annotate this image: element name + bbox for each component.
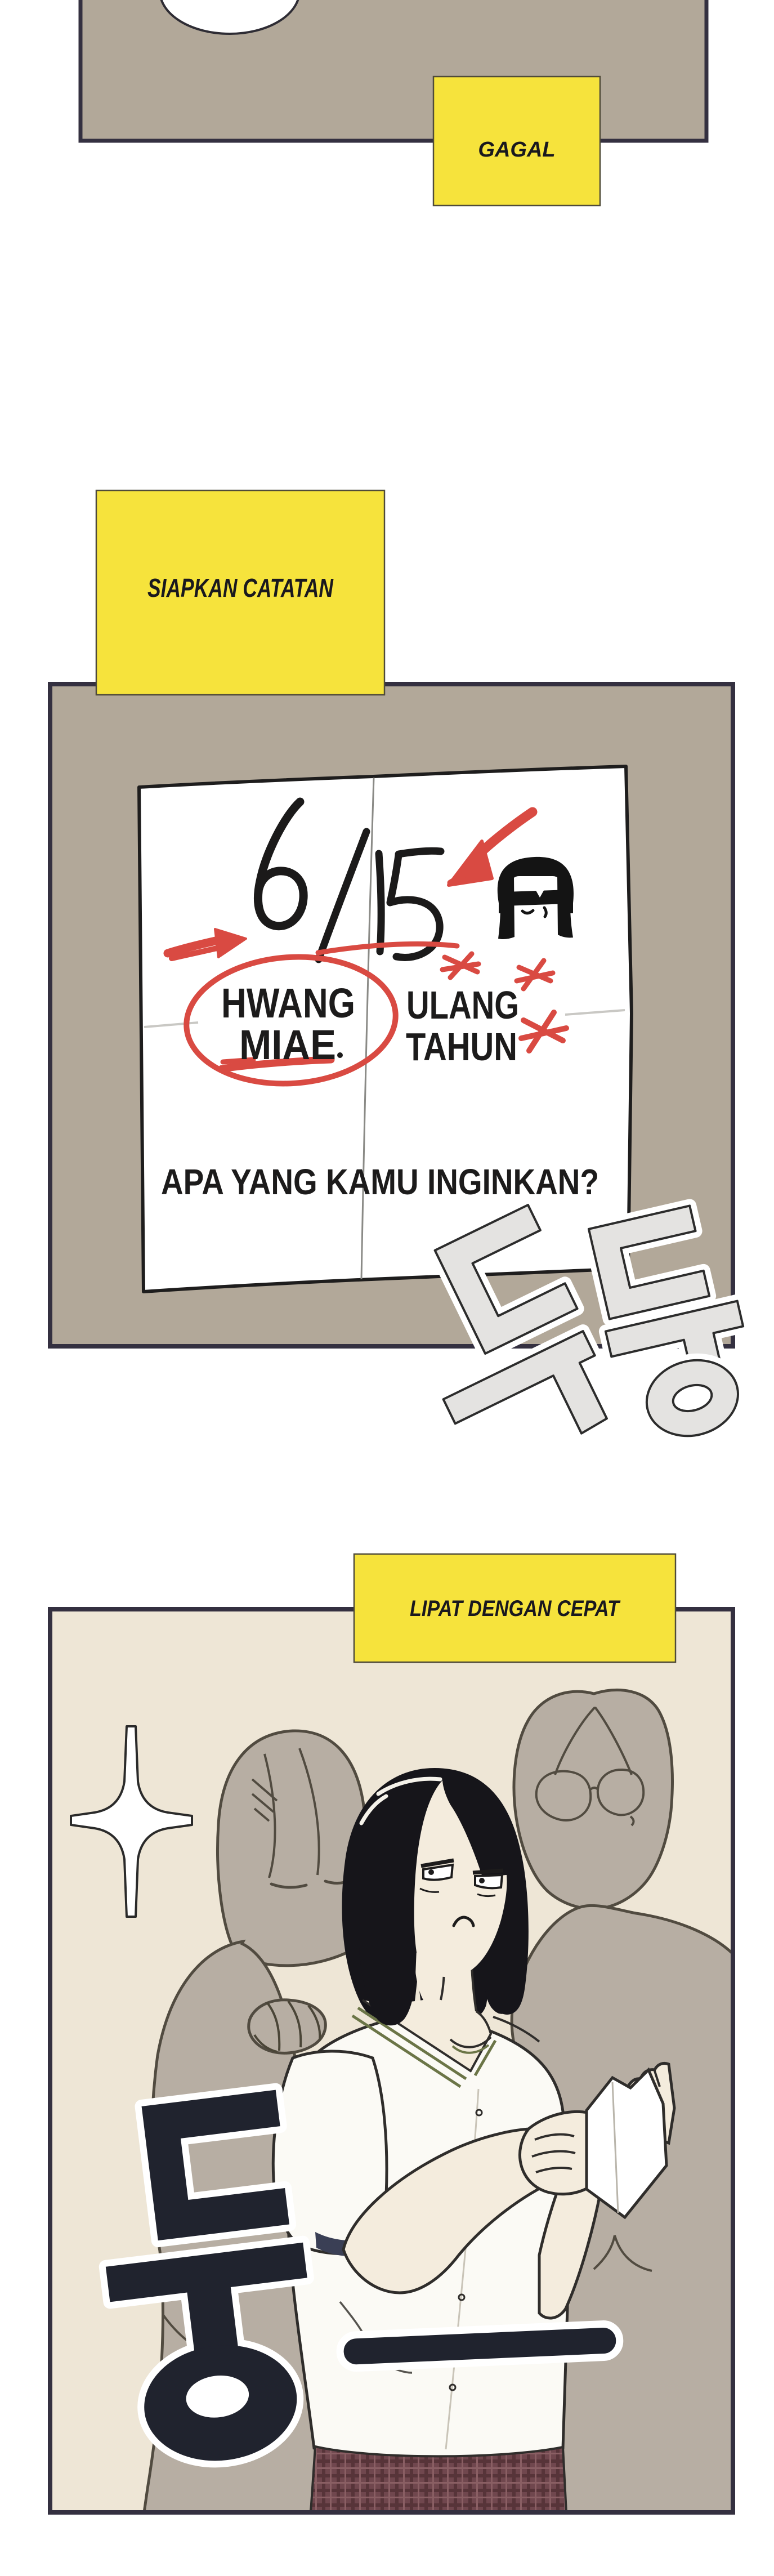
svg-text:ULANG: ULANG <box>406 983 519 1027</box>
svg-text:GAGAL: GAGAL <box>478 138 555 162</box>
svg-text:TAHUN: TAHUN <box>406 1025 517 1069</box>
svg-text:LIPAT DENGAN CEPAT: LIPAT DENGAN CEPAT <box>410 1596 621 1621</box>
svg-text:MIAE: MIAE <box>239 1021 336 1068</box>
svg-text:SIAPKAN CATATAN: SIAPKAN CATATAN <box>147 573 334 602</box>
svg-text:APA YANG KAMU INGINKAN?: APA YANG KAMU INGINKAN? <box>161 1162 599 1202</box>
svg-text:HWANG: HWANG <box>221 980 355 1026</box>
